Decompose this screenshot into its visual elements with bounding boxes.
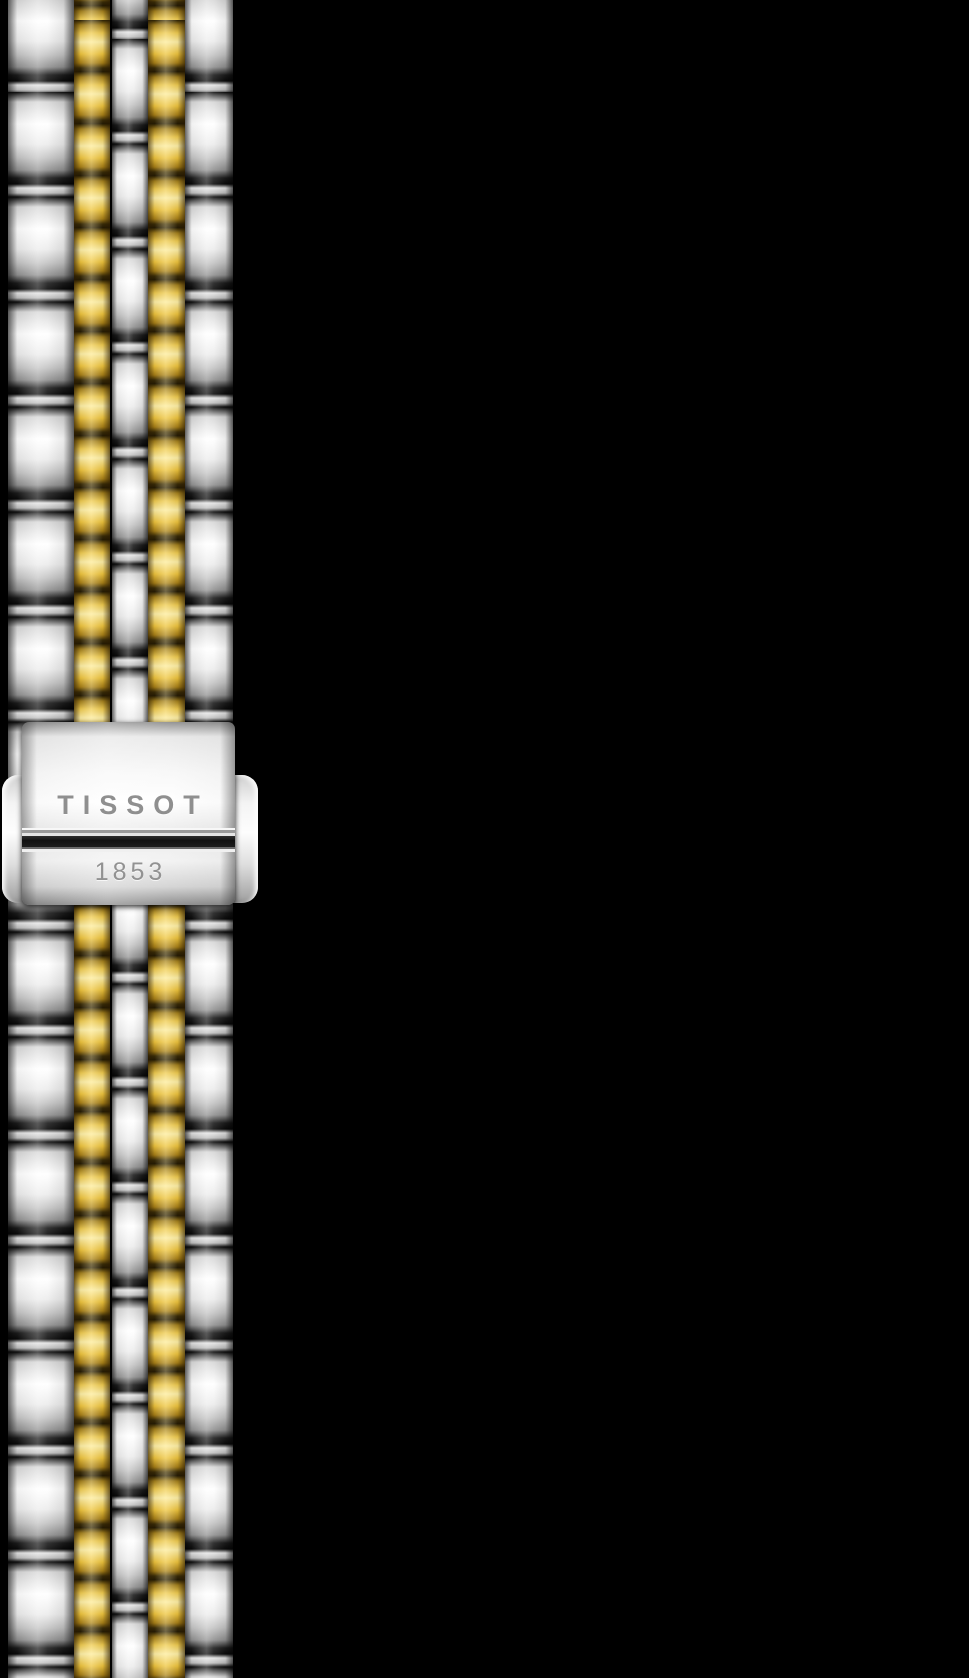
clasp-plate: TISSOT 1853: [22, 722, 235, 905]
clasp: TISSOT 1853: [2, 722, 258, 905]
clasp-groove: [22, 828, 235, 852]
product-photo: TISSOT 1853: [0, 0, 969, 1678]
clasp-year-engraving: 1853: [22, 858, 235, 887]
clasp-brand-engraving: TISSOT: [22, 790, 235, 821]
